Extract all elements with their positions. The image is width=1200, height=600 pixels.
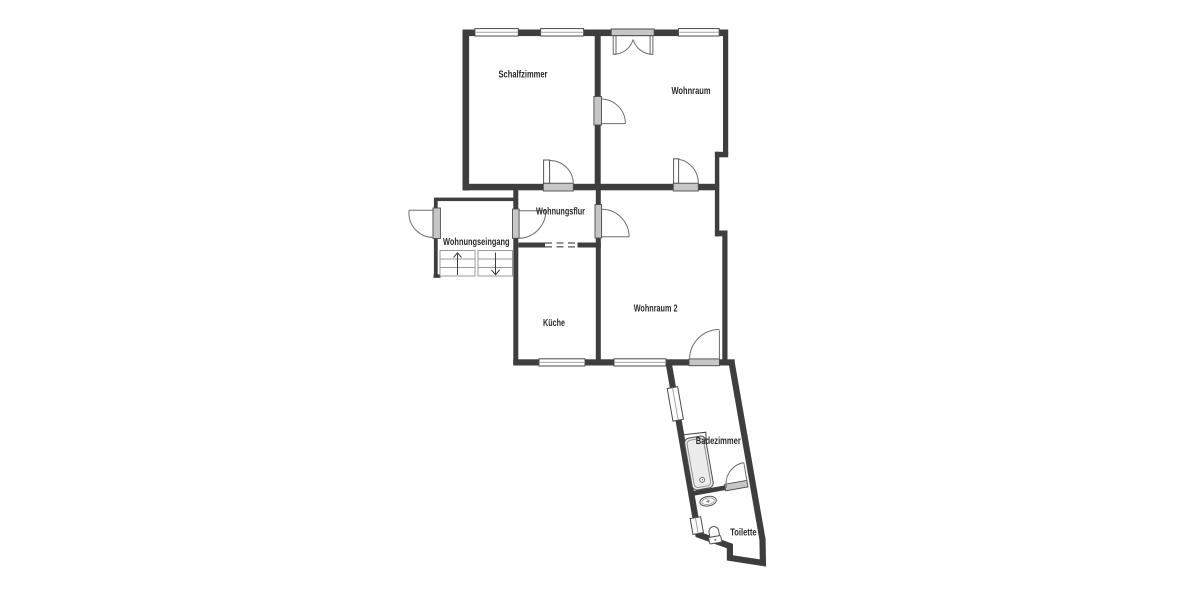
svg-text:Küche: Küche	[543, 318, 565, 329]
svg-text:Badezimmer: Badezimmer	[696, 436, 741, 447]
svg-text:Wohnungseingang: Wohnungseingang	[443, 237, 510, 248]
svg-text:Wohnungsflur: Wohnungsflur	[536, 207, 585, 218]
svg-text:Schalfzimmer: Schalfzimmer	[499, 70, 548, 81]
svg-text:Toilette: Toilette	[730, 528, 756, 539]
svg-text:Wohnraum 2: Wohnraum 2	[634, 304, 678, 315]
svg-text:Wohnraum: Wohnraum	[672, 86, 711, 97]
